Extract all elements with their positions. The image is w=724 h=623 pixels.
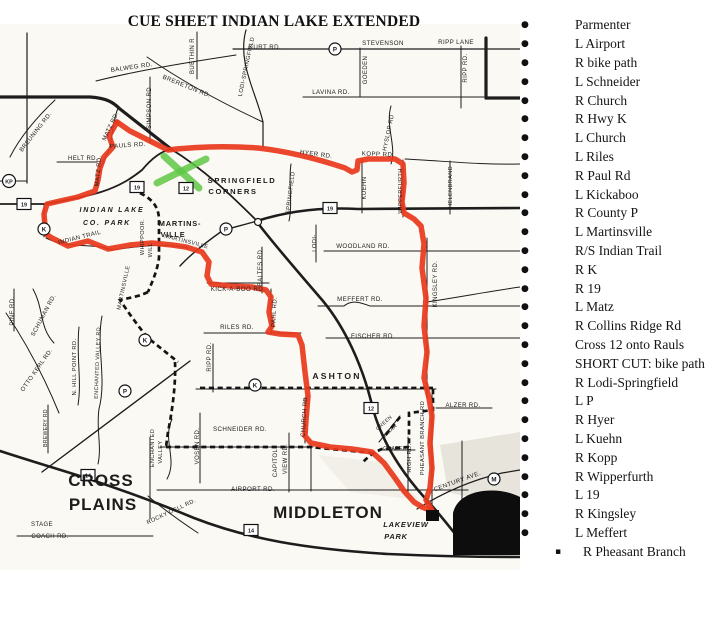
- round-bullet-icon: ●: [514, 227, 575, 237]
- road-label: HELENBRAND: [448, 166, 454, 208]
- route-map: KPKKKPPPM19191912121414 KURT RD.STEVENSO…: [0, 0, 520, 623]
- cue-text: R Collins Ridge Rd: [575, 318, 681, 334]
- road-label: LODI-: [312, 234, 318, 251]
- round-bullet-icon: ●: [514, 396, 575, 406]
- cue-item: ●R Church: [514, 91, 724, 110]
- town-label: INDIAN LAKE: [80, 207, 145, 214]
- road-label: STEVENSON: [362, 40, 404, 47]
- road-label: PINE RD.: [10, 296, 16, 325]
- shield-label: KP: [5, 179, 13, 185]
- cue-item: ●R 19: [514, 279, 724, 298]
- cue-text: R 19: [575, 281, 601, 297]
- cue-text: R Hwy K: [575, 111, 627, 127]
- town-label: VILLE: [161, 230, 186, 239]
- shield-label: 19: [134, 185, 140, 191]
- cue-text: R/S Indian Trail: [575, 243, 662, 259]
- road-label: KINGSLEY RD.: [433, 261, 439, 308]
- round-bullet-icon: ●: [514, 246, 575, 256]
- cue-text: L Kickaboo: [575, 187, 639, 203]
- cue-item: ●SHORT CUT: bike path: [514, 354, 724, 373]
- cue-text: R Hyer: [575, 412, 614, 428]
- round-bullet-icon: ●: [514, 77, 575, 87]
- cue-item: ●R bike path: [514, 54, 724, 73]
- round-bullet-icon: ●: [514, 453, 575, 463]
- cue-item: ●Cross 12 onto Rauls: [514, 336, 724, 355]
- cue-item: ●R Lodi-Springfield: [514, 373, 724, 392]
- town-label: MARTINS-: [159, 219, 202, 228]
- cue-item: ●R Wipperfurth: [514, 467, 724, 486]
- road-label: COACH RD.: [31, 534, 68, 540]
- road-label: KOPP RD.: [362, 150, 395, 158]
- cue-text: L Meffert: [575, 525, 627, 541]
- cue-item: ●R Kopp: [514, 448, 724, 467]
- shield-label: 14: [248, 528, 254, 534]
- cue-text: L Airport: [575, 36, 625, 52]
- cue-item: ●L Matz: [514, 298, 724, 317]
- town-label: ASHTON: [312, 371, 361, 381]
- shield-label: 19: [327, 206, 333, 212]
- cue-text: Parmenter: [575, 17, 630, 33]
- round-bullet-icon: ●: [514, 434, 575, 444]
- town-label: CROSS: [68, 471, 133, 490]
- round-bullet-icon: ●: [514, 208, 575, 218]
- round-bullet-icon: ●: [514, 509, 575, 519]
- shield-label: K: [42, 226, 47, 233]
- road-label: LAVINA RD.: [312, 89, 350, 96]
- cue-text: R Lodi-Springfield: [575, 375, 678, 391]
- cue-item: ●L Riles: [514, 148, 724, 167]
- round-bullet-icon: ●: [514, 284, 575, 294]
- round-bullet-icon: ●: [514, 528, 575, 538]
- cue-text: L Martinsville: [575, 224, 652, 240]
- round-bullet-icon: ●: [514, 302, 575, 312]
- road-label: GRABER: [383, 446, 407, 452]
- road-label: WILL: [148, 243, 154, 258]
- cue-text: L Schneider: [575, 74, 640, 90]
- cue-text: L 19: [575, 487, 600, 503]
- square-bullet-icon: ▪: [514, 547, 583, 557]
- road-label: PHEASANT BRANCH RD: [420, 401, 426, 475]
- cue-item: ●L Church: [514, 129, 724, 148]
- shield-label: 19: [21, 202, 27, 208]
- cue-item: ●R Collins Ridge Rd: [514, 317, 724, 336]
- cue-text: R Church: [575, 93, 627, 109]
- round-bullet-icon: ●: [514, 490, 575, 500]
- cue-list: ●Parmenter●L Airport●R bike path●L Schne…: [514, 16, 724, 561]
- road-label: CAPITOL: [273, 449, 279, 478]
- shield-label: M: [491, 476, 496, 483]
- road-label: STAGE: [31, 522, 53, 528]
- road-label: ENCHANTED: [150, 429, 156, 467]
- round-bullet-icon: ●: [514, 171, 575, 181]
- cue-text: SHORT CUT: bike path: [575, 356, 705, 372]
- road-label: WIPPERFURTH: [398, 168, 404, 213]
- shield-label: K: [143, 337, 148, 344]
- shield-label: P: [123, 388, 127, 395]
- cue-item: ●L Airport: [514, 35, 724, 54]
- round-bullet-icon: ●: [514, 340, 575, 350]
- town-label: MIDDLETON: [273, 503, 383, 522]
- cue-text: R Wipperfurth: [575, 469, 653, 485]
- road-label: BUETHIN R: [190, 38, 196, 74]
- round-bullet-icon: ●: [514, 190, 575, 200]
- cue-item: ●L Schneider: [514, 72, 724, 91]
- cue-text: R Pheasant Branch: [583, 544, 686, 560]
- cue-item: ●R Kingsley: [514, 505, 724, 524]
- cue-item: ●R Paul Rd: [514, 166, 724, 185]
- cue-text: R Kopp: [575, 450, 617, 466]
- round-bullet-icon: ●: [514, 152, 575, 162]
- shield-label: 12: [368, 406, 374, 412]
- road-label: N. HILL POINT RD.: [72, 338, 78, 395]
- round-bullet-icon: ●: [514, 58, 575, 68]
- road-label: GOEDEN: [363, 56, 369, 84]
- round-bullet-icon: ●: [514, 378, 575, 388]
- round-bullet-icon: ●: [514, 114, 575, 124]
- cue-text: L P: [575, 393, 594, 409]
- road-label: ALZER RD.: [446, 403, 481, 409]
- road-label: KUEHN: [362, 176, 368, 199]
- cue-item: ●R/S Indian Trail: [514, 242, 724, 261]
- road-label: RIPP RD.: [207, 342, 213, 371]
- shield-label: 12: [183, 186, 189, 192]
- road-label: VOSEN RD.: [195, 428, 201, 465]
- cue-item: ●Parmenter: [514, 16, 724, 35]
- round-bullet-icon: ●: [514, 472, 575, 482]
- shield-label: P: [333, 46, 337, 53]
- cue-item: ●L Kickaboo: [514, 185, 724, 204]
- road-label: VALLEY: [158, 440, 164, 463]
- shield-label: P: [224, 226, 228, 233]
- cue-item: ●L Kuehn: [514, 430, 724, 449]
- cue-item: ●L Martinsville: [514, 223, 724, 242]
- cue-text: R County P: [575, 205, 638, 221]
- road-label: RIPP RD.: [463, 53, 469, 82]
- road-label: HELT RD.: [68, 156, 98, 162]
- cue-text: Cross 12 onto Rauls: [575, 337, 684, 353]
- road-label: HIGH RD.: [407, 443, 413, 472]
- round-bullet-icon: ●: [514, 39, 575, 49]
- cue-text: L Church: [575, 130, 626, 146]
- road-label: VIEW RD.: [283, 444, 289, 475]
- shield-label: K: [253, 382, 258, 389]
- road-label: RIPP LANE: [438, 39, 474, 46]
- cue-text: L Matz: [575, 299, 614, 315]
- road-label: BREWERY RD: [43, 409, 49, 447]
- road-label: SCHNEIDER RD.: [213, 426, 267, 433]
- town-label: PARK: [384, 532, 408, 541]
- cue-item: ●R K: [514, 260, 724, 279]
- round-bullet-icon: ●: [514, 415, 575, 425]
- cue-text: L Riles: [575, 149, 614, 165]
- round-bullet-icon: ●: [514, 20, 575, 30]
- road-label: WHIPPOOR.: [140, 219, 146, 255]
- cue-item: ●L 19: [514, 486, 724, 505]
- town-label: LAKEVIEW: [383, 520, 429, 529]
- cue-item: ●R Hyer: [514, 411, 724, 430]
- cue-text: R K: [575, 262, 597, 278]
- round-bullet-icon: ●: [514, 359, 575, 369]
- road-label: RILES RD.: [220, 324, 254, 331]
- cue-text: R Paul Rd: [575, 168, 631, 184]
- town-label: CORNERS: [208, 187, 257, 196]
- road-label: BALTES RD.: [258, 248, 264, 287]
- cue-text: L Kuehn: [575, 431, 622, 447]
- page-title: CUE SHEET INDIAN LAKE EXTENDED: [0, 13, 548, 31]
- round-bullet-icon: ●: [514, 265, 575, 275]
- cue-text: R Kingsley: [575, 506, 636, 522]
- round-bullet-icon: ●: [514, 96, 575, 106]
- cue-item: ●L Meffert: [514, 524, 724, 543]
- town-label: CO. PARK: [83, 220, 131, 227]
- road-label: AIRPORT RD.: [231, 486, 275, 493]
- road-label: FISCHER RD.: [351, 333, 395, 340]
- road-label: WOODLAND RD.: [336, 243, 390, 250]
- town-label: PLAINS: [69, 495, 137, 514]
- round-bullet-icon: ●: [514, 133, 575, 143]
- round-bullet-icon: ●: [514, 321, 575, 331]
- road-label: SIMPSON RD: [147, 87, 153, 129]
- cue-item: ●R County P: [514, 204, 724, 223]
- cue-item: ●R Hwy K: [514, 110, 724, 129]
- cue-item: ▪R Pheasant Branch: [514, 542, 724, 561]
- town-label: SPRINGFIELD: [208, 176, 277, 185]
- road-label: MEFFERT RD.: [337, 296, 383, 303]
- cue-sheet-page: { "title": "CUE SHEET INDIAN LAKE EXTEND…: [0, 0, 724, 623]
- cue-item: ●L P: [514, 392, 724, 411]
- cue-text: R bike path: [575, 55, 637, 71]
